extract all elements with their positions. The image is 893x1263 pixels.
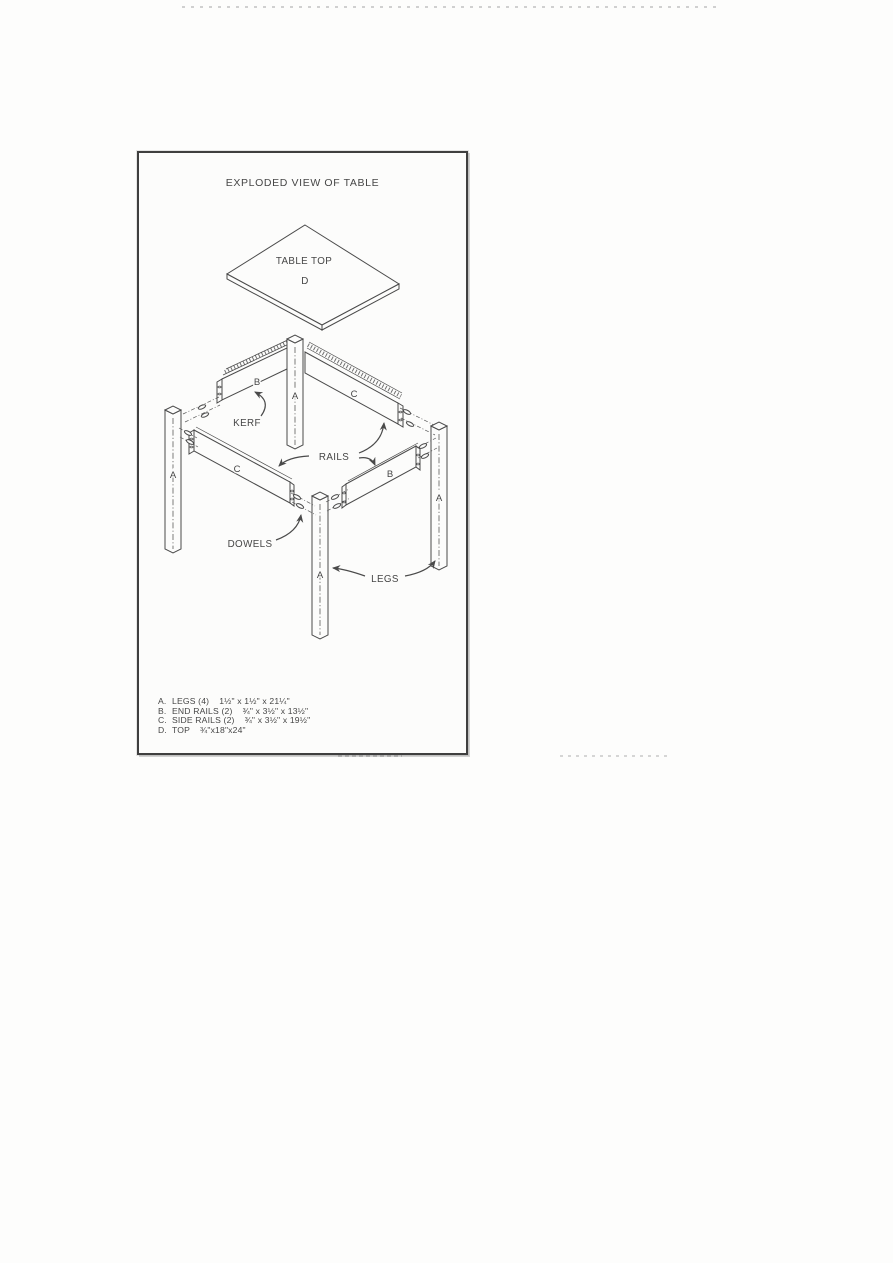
exploded-view-diagram: TABLE TOP D B <box>139 153 466 753</box>
side-rail-front: C <box>189 427 294 506</box>
dowels-callout: DOWELS <box>228 515 301 550</box>
parts-list: A. LEGS (4) 1½" x 1½" x 21¼" B. END RAIL… <box>158 697 310 735</box>
part-dimensions: ¾" x 3½" x 19½" <box>245 716 311 726</box>
end-rail-front: B <box>342 443 420 508</box>
parts-list-row-top: D. TOP ¾"x18"x24" <box>158 726 310 736</box>
leg-front: A <box>312 492 328 639</box>
table-top-label: TABLE TOP <box>276 256 332 267</box>
leg-back-letter: A <box>292 391 299 402</box>
end-rail-back-letter: B <box>254 377 260 388</box>
part-id: D. <box>158 726 172 736</box>
legs-callout: LEGS <box>333 561 435 585</box>
kerf-label: KERF <box>233 418 261 429</box>
leg-left: A <box>165 406 181 553</box>
end-rail-back: B <box>217 337 294 403</box>
rails-label: RAILS <box>319 452 349 463</box>
leg-right: A <box>431 422 447 570</box>
end-rail-front-letter: B <box>387 469 393 480</box>
scanned-page: EXPLODED VIEW OF TABLE TABLE TOP D <box>0 0 893 1263</box>
scan-artifact-bottom-right <box>560 755 670 757</box>
part-name: TOP <box>172 726 190 736</box>
table-top-letter: D <box>301 276 308 287</box>
figure-frame: EXPLODED VIEW OF TABLE TABLE TOP D <box>137 151 468 755</box>
leg-back: A <box>287 335 303 449</box>
legs-label: LEGS <box>371 574 399 585</box>
side-rail-front-letter: C <box>234 464 241 475</box>
table-top: TABLE TOP D <box>227 225 399 330</box>
scan-artifact-top <box>182 6 722 8</box>
part-dimensions: ¾"x18"x24" <box>200 726 246 736</box>
scan-artifact-bottom <box>338 755 402 757</box>
leg-left-letter: A <box>170 470 177 481</box>
kerf-callout: KERF <box>233 392 265 429</box>
dowels-label: DOWELS <box>228 539 273 550</box>
side-rail-back: C <box>305 342 403 427</box>
side-rail-back-letter: C <box>351 389 358 400</box>
leg-right-letter: A <box>436 493 443 504</box>
leg-front-letter: A <box>317 570 324 581</box>
